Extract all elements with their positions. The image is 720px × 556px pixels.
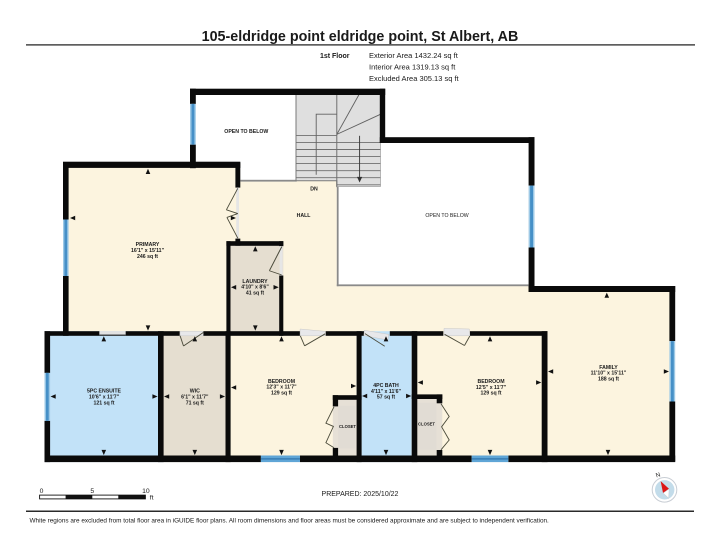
svg-text:CLOSET: CLOSET: [339, 424, 356, 429]
svg-text:188 sq ft: 188 sq ft: [598, 376, 619, 382]
svg-text:41 sq ft: 41 sq ft: [246, 291, 264, 297]
svg-text:129 sq ft: 129 sq ft: [271, 390, 292, 396]
svg-text:ft: ft: [150, 495, 154, 502]
svg-text:OPEN TO BELOW: OPEN TO BELOW: [224, 129, 268, 135]
svg-text:PREPARED: 2025/10/22: PREPARED: 2025/10/22: [322, 491, 399, 498]
svg-text:CLOSET: CLOSET: [418, 422, 435, 427]
svg-text:Interior Area 1319.13 sq ft: Interior Area 1319.13 sq ft: [369, 63, 456, 72]
svg-text:5: 5: [90, 488, 94, 495]
svg-text:DN: DN: [310, 187, 318, 193]
svg-text:PRIMARY: PRIMARY: [136, 242, 160, 248]
svg-text:121 sq ft: 121 sq ft: [93, 400, 114, 406]
svg-text:0: 0: [40, 488, 44, 495]
svg-text:57 sq ft: 57 sq ft: [377, 395, 395, 401]
svg-text:Exterior Area 1432.24 sq ft: Exterior Area 1432.24 sq ft: [369, 51, 459, 60]
svg-text:71 sq ft: 71 sq ft: [186, 400, 204, 406]
svg-text:129 sq ft: 129 sq ft: [480, 391, 501, 397]
svg-text:1st Floor: 1st Floor: [320, 53, 350, 60]
svg-text:OPEN TO BELOW: OPEN TO BELOW: [425, 213, 468, 219]
svg-text:246 sq ft: 246 sq ft: [137, 254, 158, 260]
svg-text:16'1" x 15'11": 16'1" x 15'11": [131, 248, 165, 254]
svg-text:Excluded Area 305.13 sq ft: Excluded Area 305.13 sq ft: [369, 74, 460, 83]
svg-text:105-eldridge point eldridge po: 105-eldridge point eldridge point, St Al…: [202, 29, 519, 45]
svg-text:HALL: HALL: [297, 213, 312, 219]
svg-text:10: 10: [142, 488, 150, 495]
svg-text:White regions are excluded fro: White regions are excluded from total fl…: [30, 517, 550, 524]
